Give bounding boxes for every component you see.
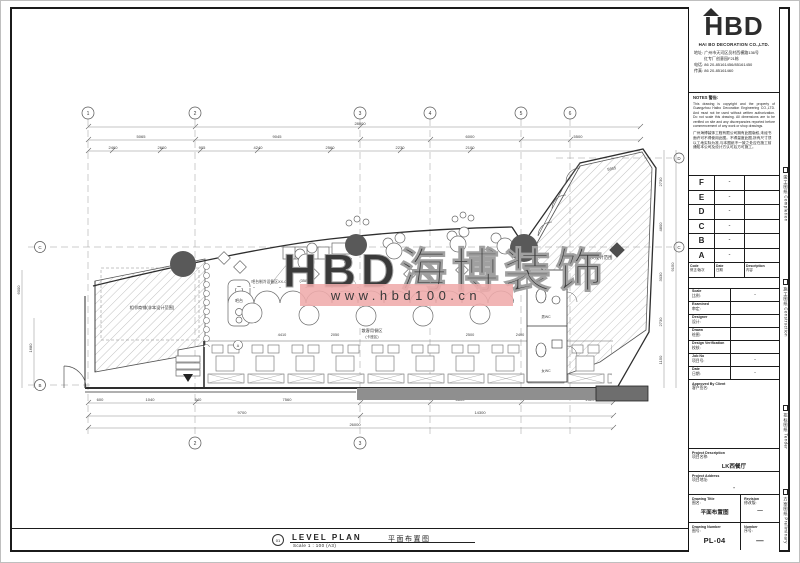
project-address-value: - [689, 485, 779, 491]
drawing-title-box: Drawing Title图名:平面布置图 Revision修改版:— [689, 495, 779, 523]
drawing-title-value: 平面布置图 [689, 508, 740, 516]
revision-header: Code修正/版次 Date日期 Description内容 [689, 263, 779, 278]
checkbox-icon [783, 489, 789, 495]
dim: 5065 [137, 134, 147, 139]
spacer-row [689, 278, 779, 289]
drawing-number-value: PL-04 [689, 536, 740, 545]
dim: 7560 [283, 397, 293, 402]
grid-bubble-bottom: 3 [359, 441, 362, 447]
dim: 9700 [238, 410, 248, 415]
dim: 4410 [278, 333, 286, 337]
drawing-number-box: Drawing Number图号:PL-04 Number序号:— [689, 523, 779, 550]
revision-row: E- [689, 191, 779, 206]
dim: 9045 [273, 134, 283, 139]
grid-bubble-left: B [38, 383, 41, 388]
revision-row: D- [689, 205, 779, 220]
dim-overall-bottom: 26000 [349, 422, 361, 427]
grid-bubble-bottom: 2 [194, 441, 197, 447]
dim: 2460 [109, 145, 119, 150]
client-signature-box: Approved By Client客户签名: [689, 380, 779, 449]
checkbox-icon [783, 279, 789, 285]
dim: 1040 [146, 397, 156, 402]
dim: 9150 [670, 262, 675, 272]
type-construction: 施工图纸 Construction [780, 279, 791, 336]
grid-bubble-top: 3 [359, 111, 362, 117]
label-wc-female: 女WC [541, 368, 551, 373]
label-dining-sub: (卡座区) [365, 334, 378, 339]
sequence-number-value: — [741, 536, 779, 545]
dim: 4800 [658, 222, 663, 232]
dim: 6000 [466, 134, 476, 139]
view-title-cn: 平面布置图 [388, 534, 431, 544]
checkbox-icon [783, 405, 789, 411]
display-wall [202, 262, 211, 347]
revision-table: F- E- D- C- B- A- [689, 176, 779, 263]
label-bar: 吧台 [235, 297, 243, 303]
dim: 2730 [658, 177, 663, 187]
watermark: HBD海博装饰 www.hbd100.cn [283, 244, 608, 306]
label-dining: 散客用餐区 [362, 327, 383, 334]
dim: 4240 [254, 145, 264, 150]
info-row-designer: Designer设计: [689, 315, 779, 328]
type-preliminary: 方案图纸 Preliminary [780, 489, 791, 543]
dim: 905 [199, 145, 206, 150]
info-rows: Scale比例:- Examined审定: Designer设计: Drawn绘… [689, 289, 779, 380]
label-adjacent-shop: 相邻商铺(非本设计范围) [130, 304, 175, 311]
info-row-jobno: Job No项目号:- [689, 354, 779, 367]
view-scale: Scale 1 : 100 (A3) [293, 543, 336, 548]
grid-bubble-top: 1 [87, 111, 90, 117]
type-tender: 招标图纸 Tender [780, 405, 791, 449]
info-row-drawn: Drawn绘图: [689, 328, 779, 341]
project-name: LK西餐厅 [689, 462, 779, 470]
dim: 2400 [516, 333, 524, 337]
dim: 600 [97, 397, 104, 402]
dim: 2230 [396, 145, 406, 150]
company-name: HAI BO DECORATION CO.,LTD. [689, 42, 779, 47]
dim: 1150 [658, 355, 663, 364]
drawing-footer: 01 LEVEL PLAN Scale 1 : 100 (A3) 平面布置图 [272, 531, 492, 551]
project-address-box: Project Address项目地址: - [689, 472, 779, 495]
info-row-verification: Design Verification校核: [689, 341, 779, 354]
planter-block [596, 386, 648, 401]
grid-bubble-top: 5 [520, 111, 523, 117]
revision-row: F- [689, 176, 779, 191]
dim: 3030 [658, 272, 663, 282]
dim: 2050 [331, 333, 339, 337]
floor-plan: 1 2 3 4 5 6 2 3 C B D C 28000 5065 9045 … [0, 0, 800, 563]
adjacent-shop-area [95, 259, 205, 372]
fax-line: 传真: 86 20-85161460 [694, 68, 775, 74]
drawing-sheet: 1 2 3 4 5 6 2 3 C B D C 28000 5065 9045 … [0, 0, 800, 563]
dim: 2500 [466, 333, 474, 337]
notes-english: This drawing is copyright and the proper… [689, 102, 779, 129]
dim: 14300 [474, 410, 486, 415]
notes-title: NOTES 警告: [689, 93, 779, 102]
dim-overall-top: 28000 [354, 121, 366, 126]
revision-row: B- [689, 234, 779, 249]
type-completion: 竣工图纸 Completion [780, 167, 791, 221]
hbd-logo: HBD [704, 13, 763, 39]
dim: 2730 [658, 317, 663, 327]
contact-block: 地址: 广州市天河区员村西横路136号 红专厂创意园F21栋 电话: 86 20… [689, 47, 779, 74]
logo-section: HBD HAI BO DECORATION CO.,LTD. 地址: 广州市天河… [689, 7, 779, 93]
info-row-scale: Scale比例:- [689, 289, 779, 302]
info-row-date: Date日期:- [689, 367, 779, 380]
revision-row: A- [689, 249, 779, 264]
label-wc-male: 男WC [541, 314, 551, 319]
view-marker-icon: 01 [272, 534, 284, 546]
paving-band [357, 388, 615, 400]
watermark-url: www.hbd100.cn [330, 288, 481, 303]
checkbox-icon [783, 167, 789, 173]
grid-bubble-top: 2 [194, 111, 197, 117]
info-row-examined: Examined审定: [689, 302, 779, 315]
footer-divider [10, 528, 688, 529]
notes-chinese: 广州海博装饰工程有限公司拥有此图版权,未经书面许可不得使用此图。不得量度此图,所… [689, 129, 779, 151]
drawing-type-strip: 竣工图纸 Completion 施工图纸 Construction 招标图纸 T… [779, 7, 790, 552]
dim: 2100 [466, 145, 476, 150]
revision-value: — [741, 508, 779, 514]
project-description-box: Project Description项目名称: LK西餐厅 [689, 449, 779, 472]
dim: 6000 [16, 285, 21, 295]
notes-section: NOTES 警告: This drawing is copyright and … [689, 93, 779, 176]
revision-desc [745, 176, 779, 190]
dim: 5500 [574, 134, 584, 139]
dim: 2560 [326, 145, 336, 150]
view-title-en: LEVEL PLAN [292, 533, 362, 542]
revision-row: C- [689, 220, 779, 235]
dim: 540 [195, 397, 202, 402]
grid-bubble-top: 6 [569, 111, 572, 117]
dim: 2600 [158, 145, 168, 150]
logo-roof-icon [703, 8, 719, 16]
title-block: HBD HAI BO DECORATION CO.,LTD. 地址: 广州市天河… [688, 7, 779, 552]
grid-bubble-top: 4 [429, 111, 432, 117]
dim: 1680 [28, 343, 33, 353]
